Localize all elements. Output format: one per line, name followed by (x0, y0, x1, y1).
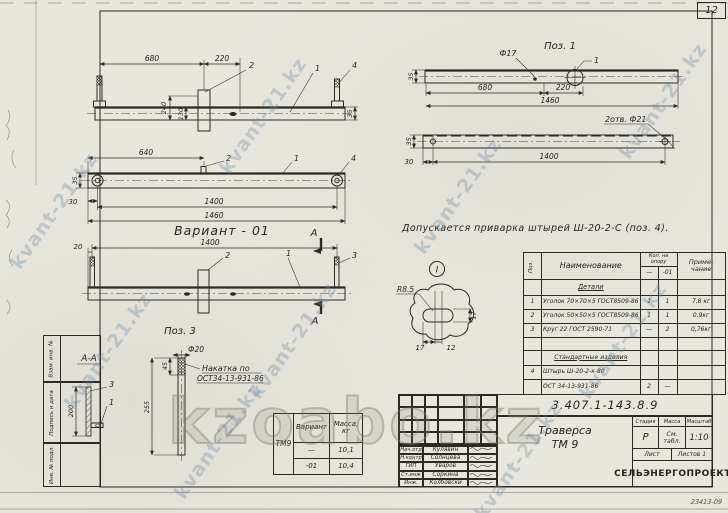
table-row: 1 Уголок 70×70×5 ГОСТ8509-86 1 1 7,8 кг (524, 296, 726, 310)
stamp2-label: Подпись и дата (49, 390, 55, 436)
dim-130: 130 (177, 108, 185, 120)
product-code: ТМ9 (274, 414, 294, 475)
dim-30: 30 (69, 198, 78, 206)
table-row: 2 Уголок 50×50×5 ГОСТ8509-86 1 1 0,9кг (524, 310, 726, 324)
section-row: Детали (524, 280, 726, 296)
dim-35: 35 (405, 137, 413, 145)
dia20-label: Ф20 (188, 345, 204, 354)
sig-cell (468, 479, 497, 487)
row-note: 0,76кг (677, 324, 725, 338)
pos3-label: Поз. 3 (164, 326, 196, 337)
stamp-signature-date: Подпись и дата (43, 382, 101, 443)
qty-sub2: -01 (658, 267, 677, 280)
knurl-note-line2: ОСТ34-13-931-86 (197, 374, 264, 383)
dim-680: 680 (478, 83, 493, 92)
col-note-header-2: чание (679, 266, 724, 273)
dim-35: 35 (71, 176, 79, 184)
mass-value: См. табл. (659, 427, 686, 448)
callout-3: 3 (352, 251, 357, 260)
sig-role: Инж. (399, 479, 423, 487)
detail-i: I R8.5 17 12 17 (396, 262, 478, 353)
section-details: Детали (542, 280, 641, 296)
col-qty-header: Кол. на опору (640, 253, 677, 267)
col-pos-header: Поз. (530, 260, 536, 272)
row-note: 7,8 кг (677, 296, 725, 310)
row-pos: 4 (524, 366, 542, 380)
stage-header: Стадия (633, 417, 659, 426)
row-qty2: 1 (658, 310, 677, 324)
row-name: Уголок 50×50×5 ГОСТ8509-86 (542, 310, 641, 324)
sheets-label: Листов 1 (672, 449, 712, 460)
dim-1400: 1400 (539, 152, 558, 161)
row-qty1: 1 (640, 296, 658, 310)
row-note (677, 366, 725, 380)
variant-label: Вариант - 01 (174, 223, 270, 238)
sig-cell (468, 454, 497, 462)
row-note (677, 380, 725, 395)
mass-header: Масса (659, 417, 686, 426)
row-qty1: — (640, 324, 658, 338)
callout-1: 1 (286, 249, 291, 258)
section-mark-bottom: А (311, 316, 319, 327)
page-number: 12 (705, 5, 718, 16)
scale-header: Масштаб (686, 417, 712, 426)
row-qty1: 2 (640, 380, 658, 395)
sig-name: Кулявин (423, 446, 468, 454)
dim-255: 255 (143, 401, 151, 413)
row-name: Уголок 70×70×5 ГОСТ8509-86 (542, 296, 641, 310)
dim-1400: 1400 (200, 238, 219, 247)
product-name-cell: Траверса ТМ 9 (497, 416, 633, 487)
knurl-note-line1: Накатка по (202, 364, 250, 373)
callout-2: 2 (225, 251, 230, 260)
stamp-label-cell: Подпись и дата (44, 383, 61, 442)
stamp-inv-number: Инв. № подл. (43, 443, 101, 487)
dim-1460: 1460 (540, 96, 559, 105)
doc-number-cell: 3.407.1-143.8.9 (497, 394, 713, 416)
row-qty2: — (658, 380, 677, 395)
view-front-variant01: 1400 20 2 1 3 А А (74, 228, 358, 327)
variant-col-header: Вариант (294, 414, 330, 443)
row-pos: 2 (524, 310, 542, 324)
sheet-label: Лист (633, 449, 672, 460)
mass-value-line2: табл. (663, 438, 680, 445)
dia17-label: Ф17 (499, 49, 517, 58)
callout-4: 4 (351, 154, 356, 163)
callout-1: 1 (294, 154, 299, 163)
detail-mark: I (436, 266, 439, 276)
callout-2: 2 (249, 61, 254, 70)
view-front-base: 680 220 240 130 35 2 1 4 (87, 54, 358, 131)
row-qty2: 1 (658, 296, 677, 310)
section-standard: Стандартные изделия (542, 351, 641, 366)
sig-cell (468, 446, 497, 454)
empty-row (524, 338, 726, 351)
dim-1400: 1400 (204, 197, 223, 206)
callout-1: 1 (109, 398, 114, 407)
dim-220: 220 (215, 54, 230, 63)
callout-3: 3 (109, 380, 114, 389)
radius-label: R8.5 (397, 285, 414, 294)
dim-1460: 1460 (204, 211, 223, 220)
sig-role: Н.контр (399, 454, 423, 462)
product-name-line1: Траверса (498, 424, 632, 438)
callout-4: 4 (352, 61, 357, 70)
revision-grid (398, 394, 498, 445)
page-number-box: 12 (697, 2, 726, 19)
variant-value: — (294, 443, 330, 459)
sig-name: Солнцева (423, 454, 468, 462)
sig-name: Колбовски (423, 479, 468, 487)
row-note: 0,9кг (677, 310, 725, 324)
dim-17: 17 (416, 344, 425, 352)
organization-name: СЕЛЬЭНЕРГОПРОЕКТ (614, 469, 728, 479)
dim-30: 30 (405, 158, 414, 166)
dim-640: 640 (139, 148, 154, 157)
dim-35: 35 (407, 72, 415, 80)
parts-table: Поз. Наименование Кол. на опору Приме- ч… (523, 252, 726, 395)
dim-45: 45 (161, 362, 169, 370)
row-qty2 (658, 366, 677, 380)
callout-1: 1 (594, 56, 599, 65)
col-name-header: Наименование (542, 253, 641, 280)
mass-col-header-2: кг (331, 428, 361, 435)
drawing-sheet: 680 220 240 130 35 2 1 4 (0, 0, 728, 513)
sig-name: Соркина (423, 471, 468, 479)
dim-680: 680 (145, 54, 160, 63)
dim-12: 12 (447, 344, 456, 352)
stage-value: Р (633, 427, 659, 448)
stamp-replaced-inv: Взам. инв. № (43, 335, 101, 382)
weld-note: Допускается приварка штырей Ш-20-2-С (по… (401, 223, 669, 234)
table-row: 3 Круг 22 ГОСТ 2590-71 — 2 0,76кг (524, 324, 726, 338)
signature-grid: Нач.отд Кулявин Н.контр Солнцева ГИП Ува… (398, 445, 498, 487)
variant-value: -01 (294, 459, 330, 475)
row-qty2: 2 (658, 324, 677, 338)
table-row: ОСТ 34-13-931-86 2 — (524, 380, 726, 395)
mass-value-line1: См. (667, 431, 678, 438)
scale-value: 1:10 (686, 427, 712, 448)
section-row: Стандартные изделия (524, 351, 726, 366)
row-qty1: 1 (640, 310, 658, 324)
mass-table: ТМ9 Вариант Масса, кг — 10,1 -01 10,4 (273, 413, 363, 475)
table-row: 4 Штырь Ш-20-2-к-80 (524, 366, 726, 380)
row-pos: 1 (524, 296, 542, 310)
stamp-label-cell: Инв. № подл. (44, 444, 61, 486)
section-mark-top: А (310, 228, 318, 239)
row-qty1 (640, 366, 658, 380)
view-plan-base: 640 35 30 1400 1460 2 1 4 (69, 148, 357, 224)
row-name: Круг 22 ГОСТ 2590-71 (542, 324, 641, 338)
pos1-label: Поз. 1 (544, 41, 576, 52)
parts-header-row: Поз. Наименование Кол. на опору Приме- ч… (524, 253, 726, 267)
row-name: ОСТ 34-13-931-86 (542, 380, 641, 395)
sig-cell (468, 462, 497, 470)
dim-35: 35 (346, 109, 354, 117)
row-pos: 3 (524, 324, 542, 338)
doc-number: 3.407.1-143.8.9 (552, 398, 659, 412)
callout-2: 2 (226, 154, 231, 163)
qty-sub1: — (640, 267, 658, 280)
sig-role: Нач.отд (399, 446, 423, 454)
dim-20: 20 (74, 243, 83, 251)
stamp-label-cell: Взам. инв. № (44, 336, 61, 381)
detail-pos3-rod: Поз. 3 Ф20 45 255 Накатка по ОСТ34-13-93… (143, 326, 264, 462)
row-name: Штырь Ш-20-2-к-80 (542, 366, 641, 380)
sig-cell (468, 471, 497, 479)
mass-value: 10,4 (330, 459, 363, 475)
row-pos (524, 380, 542, 395)
dim-220: 220 (556, 83, 571, 92)
view-pos1-plan: 2отв. Ф21 35 30 1400 (405, 115, 680, 166)
product-name-line2: ТМ 9 (498, 438, 632, 452)
sig-name: Уваров (423, 462, 468, 470)
stage-mass-scale-block: Стадия Масса Масштаб Р См. табл. 1:10 Ли… (632, 416, 713, 487)
mass-header-row: ТМ9 Вариант Масса, кг (274, 414, 363, 443)
footer-code: 23413-09 (657, 498, 722, 506)
holes-note: 2отв. Ф21 (605, 115, 647, 124)
dim-240: 240 (160, 102, 168, 114)
sig-role: Ст.инж (399, 471, 423, 479)
mass-value: 10,1 (330, 443, 363, 459)
stamp1-label: Взам. инв. № (49, 340, 55, 377)
dim-17: 17 (470, 311, 478, 320)
stamp3-label: Инв. № подл. (49, 446, 55, 484)
view-pos1-front: Поз. 1 Ф17 1 680 220 1460 35 (407, 41, 685, 109)
sig-role: ГИП (399, 462, 423, 470)
callout-1: 1 (315, 64, 320, 73)
